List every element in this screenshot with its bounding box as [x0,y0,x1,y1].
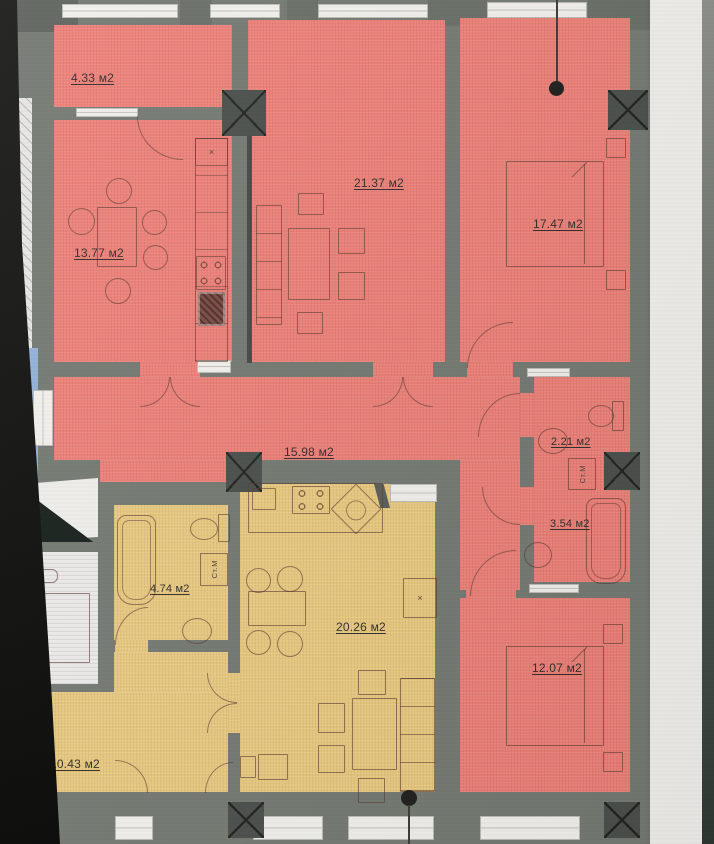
room-balcony-4-33 [54,25,232,107]
area-label: 4.74 м2 [150,583,190,595]
chair [338,228,365,254]
chair [277,631,303,657]
x-mark: × [417,593,422,603]
floor-plan-photo: × Ст.М Ст.М [0,0,714,844]
window [348,816,434,840]
wardrobe: × [403,578,437,618]
area-label: 17.47 м2 [533,218,583,231]
area-label: 13.77 м2 [74,247,124,260]
window [62,4,178,18]
column-x [222,90,266,136]
area-label: 20.26 м2 [336,621,386,634]
wall-pier [180,0,212,26]
breakfast-table [248,591,306,626]
window [480,816,580,840]
toilet-tank [612,401,624,431]
sink-bowl [342,496,370,524]
sofa [256,205,282,325]
chair [277,566,303,592]
window [487,2,587,18]
area-label: 12.07 м2 [532,662,582,675]
chair [338,272,365,300]
bed-fold [572,647,587,662]
window [318,4,428,18]
nightstand [606,270,626,290]
area-label: 10.43 м2 [50,758,100,771]
bathtub-inner [122,520,151,600]
stove [292,486,330,514]
entry-door [33,390,53,446]
pin-line [556,0,558,82]
cabinet [252,488,276,510]
area-label: 21.37 м2 [354,177,404,190]
coffee-table [288,228,330,300]
cabinet [240,756,256,778]
window [115,816,153,840]
chair [143,245,168,270]
area-label: 3.54 м2 [550,518,590,530]
chair [105,278,131,304]
chair [68,208,95,235]
pin-dot [549,81,564,96]
chair [297,312,323,334]
stove [196,256,226,290]
bed-pillow [584,649,601,743]
hall-left-extension [100,460,228,482]
area-label: 2.21 м2 [551,436,591,448]
photo-right-edge [702,0,714,844]
bath-screen [529,584,579,593]
chair [106,178,132,204]
chair [358,778,385,803]
sink [524,542,552,568]
chair [142,210,167,235]
washing-machine: Ст.М [568,458,596,490]
x-mark: × [209,147,214,157]
washing-machine: Ст.М [200,553,228,586]
toilet [588,405,614,427]
kitchen-counter [195,138,228,362]
column-x [604,802,640,838]
chair [246,630,271,655]
nightstand [603,752,623,772]
chair [318,703,345,733]
serving-window [390,484,437,502]
toilet [190,518,218,540]
nightstand [603,624,623,644]
photo-white-band [650,0,702,844]
sofa [400,678,435,792]
wall-edge [247,121,252,363]
column-x [228,802,264,838]
bed-fold [572,162,587,177]
pin-line [408,805,410,844]
pin-dot [401,790,417,806]
chair [358,670,386,695]
door-opening [520,393,534,437]
fridge: × [195,138,228,166]
washing-machine-label: Ст.М [210,560,219,578]
area-label: 15.98 м2 [284,446,334,459]
door-opening [373,362,433,377]
toilet-tank [218,514,230,542]
bathtub-inner [591,503,621,579]
column-x [608,90,648,130]
chair [318,745,345,773]
nightstand [606,138,626,158]
washing-machine-label: Ст.М [578,465,587,483]
sink [182,618,212,644]
door-opening [140,362,200,377]
door-opening [520,487,534,525]
cabinet [258,754,288,780]
chair [246,568,271,593]
balcony-door-threshold [76,108,138,117]
dining-table [352,698,397,770]
column-x [604,452,640,490]
bed [506,161,604,267]
bed-pillow [584,164,601,264]
wc-vent-window [527,368,570,377]
chair [298,193,324,215]
window [210,4,280,18]
kitchen-sink [198,292,225,326]
area-label: 4.33 м2 [71,72,114,85]
bathtub [586,498,626,584]
